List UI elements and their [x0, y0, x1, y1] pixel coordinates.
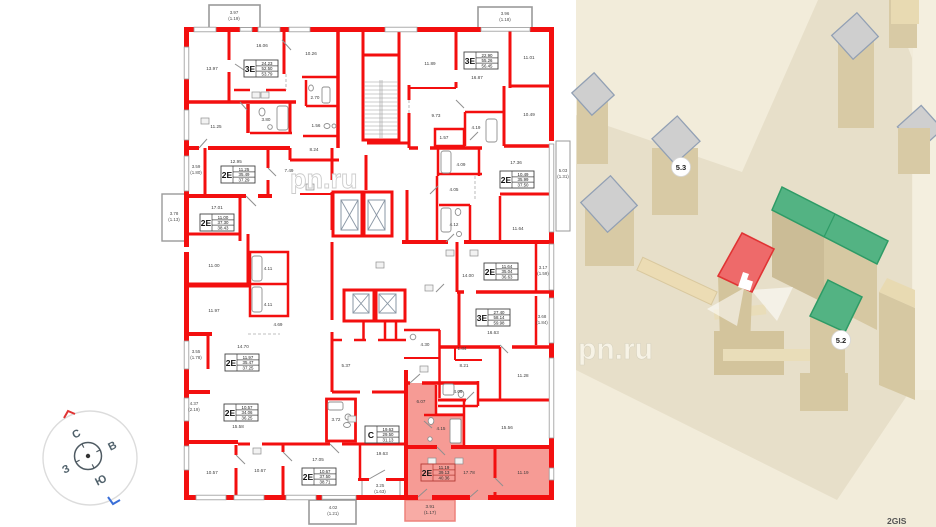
svg-text:3Е: 3Е — [465, 56, 476, 66]
svg-text:(1.21): (1.21) — [327, 511, 339, 516]
svg-text:34.06: 34.06 — [242, 410, 254, 415]
svg-text:(1.78): (1.78) — [190, 355, 202, 360]
svg-text:29.50: 29.50 — [383, 432, 395, 437]
svg-text:(1.84): (1.84) — [536, 320, 548, 325]
svg-text:4.37: 4.37 — [190, 401, 199, 406]
svg-text:11.64: 11.64 — [512, 226, 524, 231]
svg-text:10.67: 10.67 — [254, 468, 266, 473]
svg-text:59.98: 59.98 — [494, 321, 506, 326]
svg-text:3.80: 3.80 — [262, 117, 271, 122]
svg-text:17.01: 17.01 — [211, 205, 223, 210]
svg-text:4.12: 4.12 — [450, 222, 459, 227]
svg-text:2Е: 2Е — [501, 175, 512, 185]
svg-text:11.01: 11.01 — [523, 55, 535, 60]
svg-text:8.21: 8.21 — [460, 363, 469, 368]
svg-text:5.2: 5.2 — [836, 336, 846, 345]
svg-text:2Е: 2Е — [422, 468, 433, 478]
svg-text:35.47: 35.47 — [243, 360, 255, 365]
svg-text:4.11: 4.11 — [264, 266, 273, 271]
svg-text:3.68: 3.68 — [538, 314, 547, 319]
svg-text:3.91: 3.91 — [426, 504, 435, 509]
svg-text:12.95: 12.95 — [230, 159, 242, 164]
svg-text:2.70: 2.70 — [311, 95, 320, 100]
svg-text:4.09: 4.09 — [457, 162, 466, 167]
svg-text:17.78: 17.78 — [463, 470, 475, 475]
svg-text:3.25: 3.25 — [376, 483, 385, 488]
svg-text:2Е: 2Е — [303, 472, 314, 482]
svg-text:(1.18): (1.18) — [499, 17, 511, 22]
svg-text:8.24: 8.24 — [310, 147, 319, 152]
svg-text:4.06: 4.06 — [454, 389, 463, 394]
svg-text:2Е: 2Е — [225, 408, 236, 418]
svg-text:11.19: 11.19 — [517, 470, 529, 475]
svg-text:58.14: 58.14 — [494, 315, 506, 320]
svg-text:15.58: 15.58 — [232, 424, 244, 429]
svg-text:35.49: 35.49 — [239, 172, 251, 177]
svg-text:10.49: 10.49 — [523, 112, 535, 117]
svg-text:52.50: 52.50 — [262, 66, 274, 71]
svg-text:(1.19): (1.19) — [228, 16, 240, 21]
svg-text:1.84: 1.84 — [458, 346, 467, 351]
svg-text:(1.80): (1.80) — [190, 170, 202, 175]
svg-text:35.99: 35.99 — [518, 177, 530, 182]
svg-text:36.63: 36.63 — [502, 275, 514, 280]
svg-text:11.25: 11.25 — [210, 124, 222, 129]
svg-text:55.26: 55.26 — [482, 58, 494, 63]
svg-text:3.96: 3.96 — [501, 11, 510, 16]
svg-text:2GIS: 2GIS — [887, 516, 907, 526]
svg-text:31.13: 31.13 — [383, 438, 395, 443]
svg-text:(1.13): (1.13) — [168, 217, 180, 222]
svg-text:15.56: 15.56 — [501, 425, 513, 430]
svg-text:19.63: 19.63 — [376, 451, 388, 456]
svg-text:9.73: 9.73 — [432, 113, 441, 118]
svg-text:11.89: 11.89 — [424, 61, 436, 66]
svg-text:4.11: 4.11 — [264, 302, 273, 307]
svg-text:10.26: 10.26 — [305, 51, 317, 56]
svg-text:3.55: 3.55 — [192, 349, 201, 354]
svg-text:2Е: 2Е — [226, 358, 237, 368]
svg-text:14.70: 14.70 — [237, 344, 249, 349]
svg-text:36.25: 36.25 — [242, 416, 254, 421]
svg-text:37.50: 37.50 — [518, 183, 530, 188]
svg-text:3.17: 3.17 — [539, 265, 548, 270]
svg-text:17.36: 17.36 — [510, 160, 522, 165]
svg-text:4.69: 4.69 — [274, 322, 283, 327]
svg-text:(1.31): (1.31) — [557, 174, 569, 179]
svg-text:2Е: 2Е — [201, 218, 212, 228]
svg-text:3.78: 3.78 — [170, 211, 179, 216]
svg-text:53.79: 53.79 — [262, 72, 274, 77]
svg-text:4.05: 4.05 — [450, 187, 459, 192]
svg-text:3Е: 3Е — [477, 313, 488, 323]
svg-text:39.13: 39.13 — [439, 470, 451, 475]
svg-text:37.50: 37.50 — [320, 474, 332, 479]
svg-text:3.59: 3.59 — [192, 164, 201, 169]
svg-text:(1.59): (1.59) — [537, 271, 549, 276]
svg-text:16.06: 16.06 — [256, 43, 268, 48]
svg-text:2Е: 2Е — [222, 170, 233, 180]
svg-text:38.71: 38.71 — [320, 480, 332, 485]
svg-text:(1.63): (1.63) — [374, 489, 386, 494]
svg-text:4.19: 4.19 — [472, 125, 481, 130]
svg-text:37.25: 37.25 — [243, 366, 255, 371]
svg-text:3.97: 3.97 — [230, 10, 239, 15]
svg-text:56.45: 56.45 — [482, 64, 494, 69]
svg-text:С: С — [368, 430, 374, 440]
svg-text:37.30: 37.30 — [218, 220, 230, 225]
svg-text:5.37: 5.37 — [342, 363, 351, 368]
svg-text:2Е: 2Е — [485, 267, 496, 277]
svg-text:13.97: 13.97 — [206, 66, 218, 71]
svg-text:5.3: 5.3 — [676, 163, 686, 172]
svg-text:16.87: 16.87 — [471, 75, 483, 80]
svg-text:11.28: 11.28 — [517, 373, 529, 378]
svg-text:pn.ru: pn.ru — [290, 164, 358, 194]
svg-text:11.97: 11.97 — [208, 308, 220, 313]
svg-text:11.00: 11.00 — [208, 263, 220, 268]
svg-text:1.56: 1.56 — [312, 123, 321, 128]
svg-text:14.00: 14.00 — [462, 273, 474, 278]
svg-text:4.15: 4.15 — [437, 426, 446, 431]
svg-text:(1.17): (1.17) — [424, 510, 436, 515]
svg-text:pn.ru: pn.ru — [578, 333, 653, 366]
svg-text:3Е: 3Е — [245, 64, 256, 74]
svg-text:1.57: 1.57 — [440, 135, 449, 140]
svg-text:(2.19): (2.19) — [188, 407, 200, 412]
svg-text:40.36: 40.36 — [439, 476, 451, 481]
svg-text:35.04: 35.04 — [502, 269, 514, 274]
svg-text:4.02: 4.02 — [329, 505, 338, 510]
svg-text:38.43: 38.43 — [218, 226, 230, 231]
svg-text:10.57: 10.57 — [206, 470, 218, 475]
svg-text:6.07: 6.07 — [417, 399, 426, 404]
svg-text:4.30: 4.30 — [421, 342, 430, 347]
svg-text:17.05: 17.05 — [312, 457, 324, 462]
svg-text:16.63: 16.63 — [487, 330, 499, 335]
svg-text:5.03: 5.03 — [559, 168, 568, 173]
svg-text:3.72: 3.72 — [332, 417, 341, 422]
svg-text:37.29: 37.29 — [239, 178, 251, 183]
